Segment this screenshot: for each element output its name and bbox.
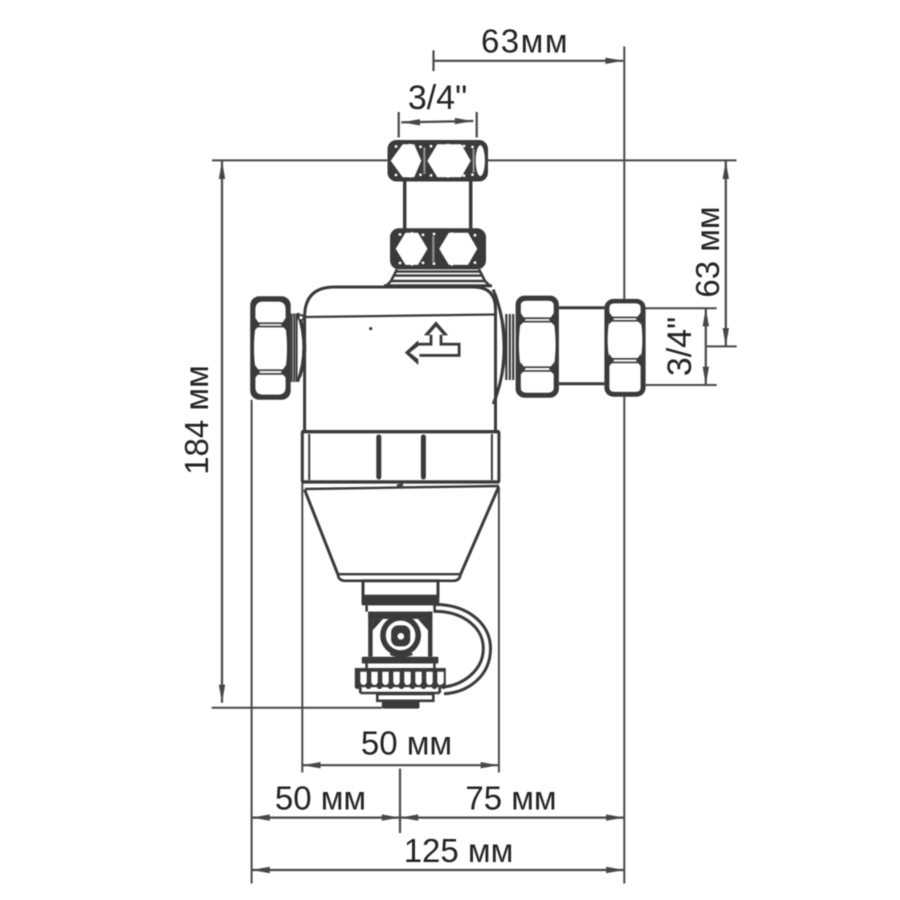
svg-text:125 мм: 125 мм: [404, 832, 514, 869]
svg-text:184 мм: 184 мм: [178, 365, 215, 475]
svg-text:63 мм: 63 мм: [689, 206, 726, 297]
svg-text:3/4": 3/4": [661, 317, 699, 376]
svg-text:63мм: 63мм: [481, 23, 569, 60]
svg-text:50 мм: 50 мм: [275, 780, 366, 817]
svg-text:50 мм: 50 мм: [361, 725, 452, 762]
svg-text:3/4": 3/4": [408, 79, 467, 117]
svg-text:75 мм: 75 мм: [465, 780, 556, 817]
